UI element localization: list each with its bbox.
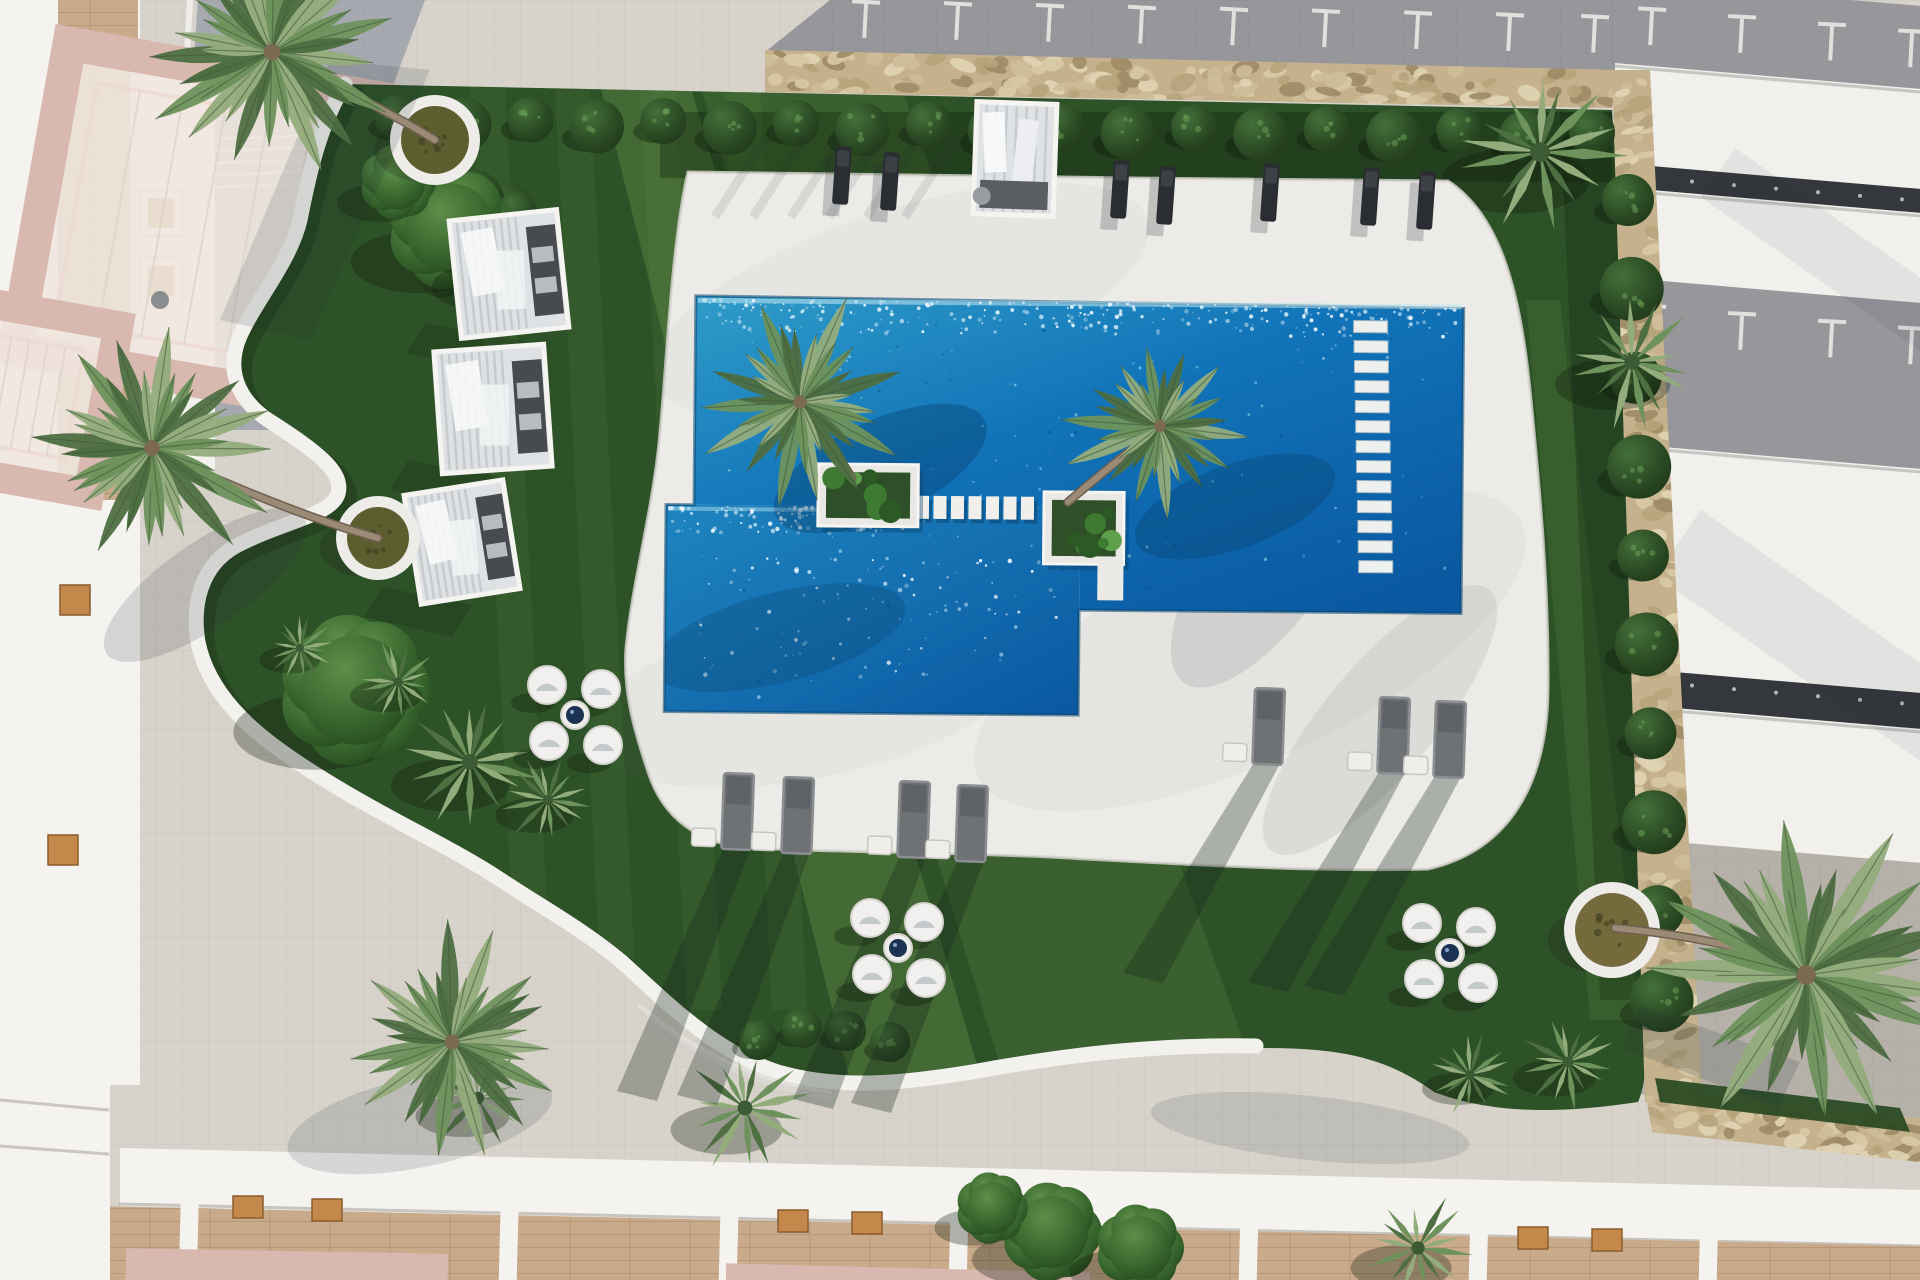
sparkle: [752, 515, 756, 519]
sparkle: [993, 330, 996, 333]
sparkle: [879, 567, 882, 570]
sparkle: [785, 325, 789, 329]
sparkle: [1071, 324, 1074, 327]
bush-leaf: [1632, 207, 1638, 213]
sparkle: [1303, 331, 1305, 333]
sparkle: [936, 301, 939, 304]
sparkle: [880, 319, 882, 321]
sparkle: [1017, 540, 1018, 541]
bush-leaf: [1642, 721, 1645, 724]
sparkle: [895, 301, 897, 303]
sparkle: [907, 321, 909, 323]
sparkle: [771, 529, 776, 534]
frond-rib: [1717, 975, 1806, 976]
shape: [1382, 700, 1407, 729]
sparkle: [878, 390, 881, 393]
planter-plant: [862, 469, 878, 485]
sparkle: [775, 527, 779, 531]
sparkle: [1340, 313, 1344, 317]
sparkle: [1264, 558, 1267, 561]
sparkle: [957, 536, 959, 538]
bush-leaf: [537, 115, 540, 118]
sparkle: [732, 569, 736, 573]
bush-leaf: [1639, 725, 1643, 729]
sparkle: [1422, 312, 1424, 314]
sparkle: [937, 563, 939, 565]
sparkle: [1186, 322, 1190, 326]
sparkle: [898, 588, 903, 593]
seam-light: [1816, 190, 1820, 194]
sparkle: [1421, 496, 1422, 497]
sparkle: [1103, 325, 1107, 329]
sparkle: [944, 604, 947, 607]
bush-leaf: [1637, 466, 1644, 473]
sparkle: [751, 566, 754, 569]
sparkle: [725, 508, 727, 510]
sparkle: [867, 569, 869, 571]
shape: [1624, 354, 1639, 369]
sparkle: [712, 299, 714, 301]
sparkle: [1006, 613, 1008, 615]
sparkle: [999, 652, 1003, 656]
sparkle: [999, 658, 1002, 661]
bed-texture: [387, 529, 392, 534]
bush-leaf: [1673, 987, 1679, 993]
bed-texture: [1609, 919, 1615, 925]
sparkle: [930, 302, 934, 306]
sparkle: [860, 397, 862, 399]
sparkle: [1244, 306, 1248, 310]
side-table: [867, 836, 892, 855]
sparkle: [1261, 309, 1264, 312]
sparkle: [979, 559, 982, 562]
sparkle: [1140, 315, 1143, 318]
sparkle: [987, 576, 988, 577]
sparkle: [1208, 310, 1210, 312]
sparkle: [877, 307, 881, 311]
sparkle: [749, 301, 753, 305]
sparkle: [1120, 322, 1122, 324]
sparkle: [988, 301, 992, 305]
sparkle: [1437, 312, 1440, 315]
sparkle: [1008, 559, 1013, 564]
sparkle: [992, 561, 994, 563]
sparkle: [813, 577, 815, 579]
sparkle: [690, 512, 693, 515]
bush: [1366, 109, 1420, 163]
stepping-stone: [968, 496, 981, 519]
bush-leaf: [1675, 996, 1679, 1000]
sparkle: [734, 511, 738, 515]
sparkle: [1058, 417, 1060, 419]
planter-plant: [1098, 538, 1109, 549]
table-top: [889, 939, 907, 957]
sparkle: [1163, 305, 1165, 307]
sparkle: [768, 521, 772, 525]
sparkle: [995, 310, 999, 314]
sparkle: [783, 303, 785, 305]
bush-leaf: [1195, 126, 1201, 132]
sparkle: [899, 663, 901, 665]
sparkle: [817, 314, 819, 316]
shape: [496, 250, 526, 310]
sparkle: [1078, 305, 1082, 309]
sparkle: [1306, 324, 1308, 326]
bush-leaf: [728, 124, 732, 128]
sparkle: [949, 312, 953, 316]
bush-leaf: [518, 110, 524, 116]
bush-leaf: [746, 1044, 751, 1049]
sparkle: [995, 459, 997, 461]
sparkle: [871, 329, 874, 332]
sparkle: [715, 510, 719, 514]
sparkle: [702, 298, 707, 303]
aerial-site-render: [0, 0, 1920, 1280]
side-table: [1347, 752, 1372, 771]
sparkle: [1429, 327, 1431, 329]
sparkle: [918, 317, 920, 319]
planter-plant: [1084, 513, 1106, 535]
sparkle: [1006, 627, 1008, 629]
sparkle: [917, 306, 921, 310]
shape: [1411, 1241, 1424, 1254]
bush: [1101, 106, 1155, 160]
sparkle: [1280, 434, 1284, 438]
sparkle: [913, 594, 916, 597]
bush-leaf: [1629, 648, 1636, 655]
bush-leaf: [1641, 549, 1646, 554]
sparkle: [1226, 319, 1230, 323]
bush-leaf: [652, 119, 656, 123]
sparkle: [764, 305, 767, 308]
sparkle: [997, 316, 998, 317]
sparkle: [929, 613, 931, 615]
sparkle: [670, 506, 674, 510]
bush-leaf: [857, 136, 864, 143]
sparkle: [944, 609, 948, 613]
sparkle: [671, 520, 674, 523]
sparkle: [1453, 308, 1457, 312]
sparkle: [793, 569, 795, 571]
pool-step: [1355, 401, 1389, 413]
sparkle: [733, 302, 736, 305]
sparkle: [753, 523, 757, 527]
sparkle: [830, 558, 832, 560]
bush-leaf: [792, 1016, 798, 1022]
shape: [726, 776, 751, 805]
sparkle: [1198, 317, 1201, 320]
bush-leaf: [1642, 815, 1646, 819]
shape: [534, 276, 557, 294]
wood-door: [1592, 1229, 1622, 1251]
bed-texture: [1594, 929, 1602, 937]
sparkle: [1352, 343, 1354, 345]
sparkle: [1299, 609, 1302, 612]
sparkle: [740, 514, 744, 518]
sparkle: [720, 305, 722, 307]
sparkle: [991, 582, 993, 584]
sparkle: [980, 302, 982, 304]
bush-leaf: [1638, 830, 1645, 837]
sparkle: [1074, 431, 1077, 434]
sparkle: [925, 638, 926, 639]
sparkle: [1014, 435, 1016, 437]
bush-leaf: [1622, 474, 1627, 479]
bush-leaf: [1667, 833, 1672, 838]
bush-leaf: [1650, 731, 1654, 735]
shape: [480, 385, 509, 446]
sparkle: [980, 494, 982, 496]
sparkle: [1114, 325, 1118, 329]
sparkle: [1314, 327, 1318, 331]
sparkle: [1334, 507, 1337, 510]
bush-leaf: [1631, 545, 1637, 551]
sparkle: [1067, 314, 1070, 317]
sparkle: [800, 310, 803, 313]
sparkle: [740, 508, 743, 511]
bed-texture: [366, 548, 372, 554]
sparkle: [1119, 309, 1122, 312]
bush-leaf: [1637, 479, 1642, 484]
shape: [138, 1264, 432, 1280]
pool-planter: [818, 464, 924, 533]
sparkle: [747, 327, 751, 331]
seam-light: [1774, 691, 1778, 695]
sparkle: [960, 332, 962, 334]
sparkle: [1334, 307, 1338, 311]
sparkle: [1103, 329, 1107, 333]
sparkle: [766, 557, 769, 560]
sparkle: [985, 564, 987, 566]
sparkle: [1060, 580, 1061, 581]
sparkle: [890, 310, 893, 313]
sparkle: [961, 318, 965, 322]
bush-leaf: [1651, 645, 1657, 651]
sparkle: [1090, 311, 1094, 315]
sparkle: [684, 520, 686, 522]
sparkle: [742, 308, 744, 310]
sparkle: [722, 323, 723, 324]
bush-leaf: [1654, 631, 1661, 638]
sparkle: [1254, 381, 1257, 384]
bed-texture: [1604, 921, 1609, 926]
sparkle: [757, 695, 761, 699]
bush-leaf: [792, 1025, 795, 1028]
sparkle: [1222, 422, 1224, 424]
sparkle: [854, 313, 856, 315]
bed-texture: [381, 547, 386, 552]
sparkle: [821, 310, 825, 314]
sparkle: [984, 637, 987, 640]
palm-crown-center: [264, 44, 281, 61]
pool-step: [1354, 361, 1388, 373]
sparkle: [800, 326, 802, 328]
sparkle: [738, 316, 740, 318]
sparkle: [1342, 334, 1346, 338]
shape: [885, 156, 898, 173]
bush-leaf: [1257, 135, 1261, 139]
sparkle: [965, 402, 967, 404]
bush-leaf: [935, 111, 941, 117]
sparkle: [677, 529, 681, 533]
sparkle: [896, 346, 898, 348]
sparkle: [882, 566, 884, 568]
seam-light: [1690, 180, 1694, 184]
sparkle: [1053, 317, 1055, 319]
shape: [738, 1101, 753, 1116]
sparkle: [999, 319, 1002, 322]
sparkle: [1424, 310, 1426, 312]
bush: [570, 99, 624, 153]
side-table: [1222, 743, 1247, 762]
sparkle: [874, 323, 878, 327]
sparkle: [974, 650, 976, 652]
sparkle: [1416, 321, 1419, 324]
bed-texture: [1617, 943, 1621, 947]
sparkle: [1152, 322, 1154, 324]
shape: [1438, 704, 1463, 733]
pool-step: [1357, 461, 1391, 473]
wood-door: [852, 1212, 882, 1234]
sparkle: [1129, 304, 1132, 307]
sparkle: [883, 301, 885, 303]
sparkle: [1152, 360, 1154, 362]
sparkle: [981, 536, 982, 537]
sparkle: [1312, 559, 1313, 560]
sparkle: [1244, 323, 1248, 327]
sparkle: [760, 304, 762, 306]
sparkle: [689, 528, 691, 530]
sparkle: [1266, 569, 1269, 572]
sparkle: [1408, 326, 1410, 328]
sparkle: [1367, 456, 1369, 458]
sparkle: [939, 586, 942, 589]
bush-leaf: [1330, 122, 1333, 125]
sparkle: [722, 305, 726, 309]
sparkle: [1139, 366, 1142, 369]
sparkle: [1054, 322, 1058, 326]
sparkle: [729, 521, 731, 523]
sparkle: [1029, 304, 1031, 306]
sparkle: [719, 530, 723, 534]
sparkle: [871, 534, 874, 537]
sparkle: [1017, 611, 1020, 614]
tree-crown: [966, 1182, 1018, 1234]
stepping-stone: [1003, 496, 1016, 519]
sparkle: [1296, 327, 1298, 329]
sparkle: [1149, 339, 1150, 340]
sparkle: [742, 325, 746, 329]
bush: [1233, 107, 1287, 161]
pink-pergola-frame: [138, 1264, 432, 1280]
bush-leaf: [1660, 1000, 1663, 1003]
bed-texture: [418, 138, 425, 145]
sparkle: [1196, 366, 1199, 369]
sparkle: [900, 319, 905, 324]
sparkle: [848, 355, 851, 358]
sparkle: [1260, 317, 1263, 320]
sparkle: [1296, 547, 1297, 548]
sparkle: [1115, 482, 1117, 484]
sparkle: [863, 304, 866, 307]
palm-crown-center: [1796, 965, 1816, 985]
sparkle: [785, 531, 787, 533]
planter-plant: [1103, 508, 1114, 519]
sparkle: [713, 526, 717, 530]
table-glint: [570, 710, 574, 714]
sparkle: [1249, 308, 1251, 310]
sparkle: [1097, 321, 1100, 324]
sparkle: [1037, 305, 1039, 307]
sparkle: [983, 315, 985, 317]
seam-light: [1858, 194, 1862, 198]
sparkle: [1100, 305, 1104, 309]
sparkle: [735, 354, 736, 355]
sparkle: [1115, 315, 1119, 319]
sparkle: [860, 331, 862, 333]
sparkle: [1249, 314, 1253, 318]
sparkle: [831, 536, 833, 538]
palm-crown-center: [144, 440, 160, 456]
sparkle: [879, 300, 883, 304]
bush-leaf: [756, 1045, 759, 1048]
sparkle: [1015, 595, 1017, 597]
shape: [960, 788, 985, 817]
bush: [773, 100, 819, 146]
sparkle: [936, 611, 938, 613]
sparkle: [968, 315, 972, 319]
sparkle: [1250, 327, 1254, 331]
sparkle: [1233, 307, 1238, 312]
sparkle: [1293, 306, 1295, 308]
sparkle: [925, 382, 927, 384]
sparkle: [760, 314, 762, 316]
sparkle: [838, 543, 839, 544]
bush: [508, 97, 554, 143]
shape: [449, 519, 480, 576]
sparkle: [1162, 318, 1164, 320]
sparkle: [791, 304, 793, 306]
sparkle: [721, 507, 723, 509]
sparkle: [1145, 587, 1148, 590]
sparkle: [1056, 325, 1059, 328]
pool-step: [1356, 421, 1390, 433]
palm-crown-center: [793, 395, 806, 408]
bush-leaf: [665, 123, 669, 127]
sparkle: [1038, 488, 1041, 491]
sparkle: [743, 589, 746, 592]
sparkle: [709, 302, 711, 304]
sparkle: [1103, 314, 1105, 316]
bed-texture: [442, 134, 447, 139]
sparkle: [1318, 307, 1320, 309]
bush-leaf: [1632, 295, 1638, 301]
bush-leaf: [794, 128, 799, 133]
sparkle: [1393, 311, 1396, 314]
shape: [786, 780, 811, 809]
bush-leaf: [928, 122, 933, 127]
sparkle: [911, 619, 912, 620]
bush-leaf: [1637, 299, 1643, 305]
bush-leaf: [794, 116, 801, 123]
bush-leaf: [731, 121, 736, 126]
shape: [837, 150, 850, 167]
sparkle: [1013, 302, 1015, 304]
sparkle: [1225, 312, 1227, 314]
shape: [296, 644, 304, 652]
sparkle: [1350, 311, 1353, 314]
sparkle: [1453, 321, 1457, 325]
